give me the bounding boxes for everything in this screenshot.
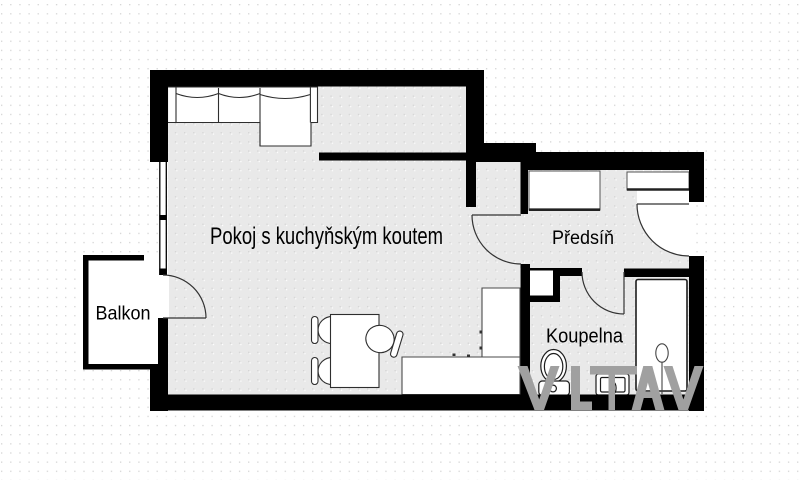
svg-text:Koupelna: Koupelna xyxy=(546,325,624,348)
svg-text:Pokoj s kuchyňským koutem: Pokoj s kuchyňským koutem xyxy=(210,223,443,250)
svg-text:Balkon: Balkon xyxy=(96,304,151,325)
svg-text:Předsíň: Předsíň xyxy=(552,228,614,249)
